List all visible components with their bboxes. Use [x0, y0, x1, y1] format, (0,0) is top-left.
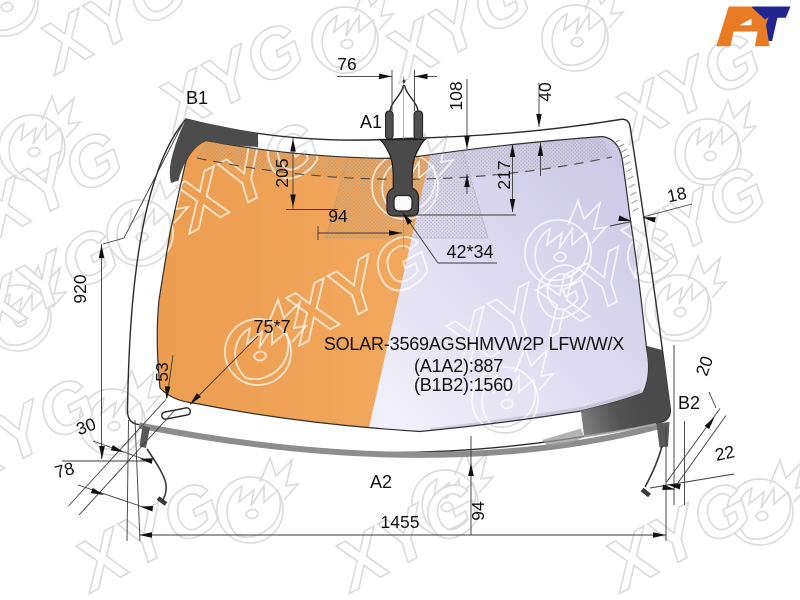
svg-text:B2: B2: [678, 393, 700, 413]
svg-text:22: 22: [713, 441, 736, 465]
svg-text:217: 217: [494, 160, 514, 189]
svg-text:108: 108: [446, 81, 466, 110]
svg-text:205: 205: [272, 158, 292, 187]
svg-text:75*7: 75*7: [253, 317, 290, 337]
svg-text:42*34: 42*34: [446, 242, 493, 262]
svg-text:SOLAR-3569AGSHMVW2P LFW/W/X: SOLAR-3569AGSHMVW2P LFW/W/X: [324, 334, 625, 354]
svg-text:920: 920: [70, 274, 90, 303]
svg-text:53: 53: [152, 362, 172, 381]
svg-text:76: 76: [337, 54, 356, 74]
svg-text:94: 94: [328, 206, 348, 226]
svg-text:18: 18: [665, 183, 688, 207]
svg-text:94: 94: [468, 501, 488, 521]
svg-text:1455: 1455: [381, 512, 420, 532]
svg-text:40: 40: [535, 82, 555, 102]
svg-text:B1: B1: [186, 88, 208, 108]
svg-text:A2: A2: [370, 472, 392, 492]
svg-text:(A1A2):887: (A1A2):887: [414, 356, 503, 376]
svg-text:A1: A1: [360, 112, 382, 132]
svg-text:(B1B2):1560: (B1B2):1560: [414, 375, 513, 395]
